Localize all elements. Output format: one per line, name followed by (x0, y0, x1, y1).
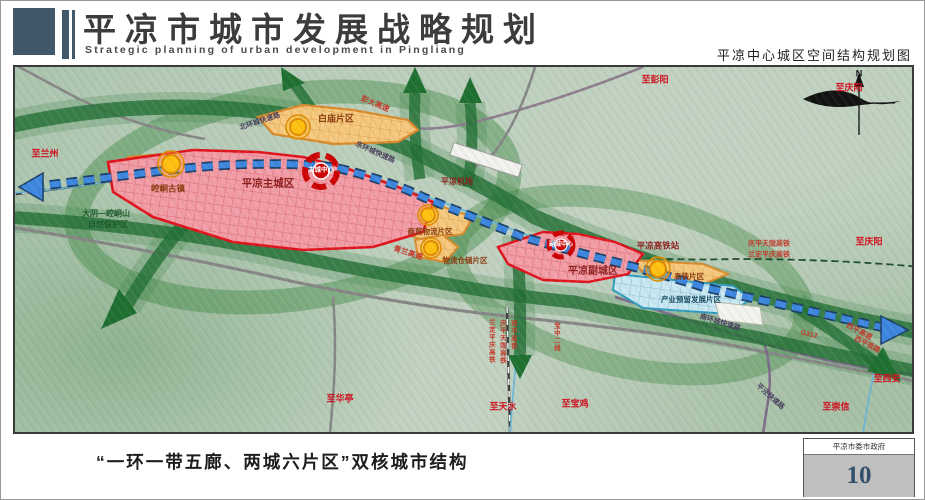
label-logistics-storage-area: 物流仓储片区 (443, 257, 488, 265)
label-kongtong-town: 崆峒古镇 (151, 185, 185, 194)
compass-n-label: N (856, 69, 863, 78)
label-main-city: 平凉主城区 (242, 178, 295, 189)
label-to-pengyang: 至彭阳 (641, 75, 668, 84)
label-to-lanzhou: 至兰州 (31, 149, 58, 158)
label-to-qingyang-north: 至庆阳 (835, 83, 862, 92)
label-trade-logistics-area: 商贸物流片区 (408, 228, 453, 236)
label-nature-reserve-line1: 大阴—崆峒山 (82, 210, 130, 218)
zone-baimiao[interactable] (258, 105, 418, 144)
label-to-xian: 至西安 (873, 374, 900, 383)
label-qingping-tianlong-hsr: 庆平天陇高铁 (748, 240, 790, 247)
page-number-box: 平凉市委市政府 10 (803, 438, 915, 497)
logo-bar-thin (72, 10, 75, 59)
label-landing-pingqing-hsr: 兰定平庆高铁 (748, 251, 790, 258)
label-airport: 平凉机场 (441, 178, 473, 186)
footer: “一环一带五廊、两城六片区”双核城市结构 平凉市委市政府 10 (1, 434, 925, 500)
header: 平凉市城市发展战略规划 Strategic planning of urban … (1, 1, 925, 63)
label-ldpq-hsr-vertical: 兰定平庆高铁 (487, 319, 494, 364)
government-label: 平凉市委市政府 (804, 439, 914, 455)
label-baimiao-area: 白庙片区 (318, 114, 354, 123)
label-hsr-station: 平凉高铁站 (637, 242, 680, 251)
map-canvas (15, 67, 912, 432)
label-qptl-hsr-vertical: 庆平天陇高铁 (498, 320, 505, 365)
logo-bar (62, 10, 69, 59)
label-xiping-hsr-vertical: 西平高铁 (509, 320, 516, 350)
label-to-huating: 至华亭 (326, 394, 353, 403)
label-to-qingyang-east: 至庆阳 (855, 237, 882, 246)
label-to-chongxin: 至崇信 (822, 402, 849, 411)
label-nature-reserve-line2: 自然保护区 (88, 221, 128, 229)
label-hsr-area: 高铁片区 (674, 273, 704, 281)
page-subtitle: Strategic planning of urban development … (85, 44, 466, 56)
planning-map[interactable]: 至兰州 至彭阳 至庆阳 至庆阳 至西安 至崇信 至宝鸡 至天水 至华亭 彭大高速… (13, 65, 914, 434)
plan-sheet: 平凉市城市发展战略规划 Strategic planning of urban … (0, 0, 925, 500)
page-number: 10 (804, 455, 914, 497)
label-to-baoji: 至宝鸡 (561, 399, 588, 408)
label-sub-city: 平凉副城区 (568, 267, 618, 278)
label-industry-reserve-area: 产业预留发展片区 (661, 296, 721, 304)
label-sub-center: 副城中心 (549, 242, 573, 248)
label-main-center: 主城中心 (308, 168, 334, 175)
logo-square (13, 8, 55, 55)
label-to-tianshui: 至天水 (489, 402, 516, 411)
structure-caption: “一环一带五廊、两城六片区”双核城市结构 (96, 449, 469, 474)
label-baozhong-2nd-line: 宝中二线 (552, 322, 559, 352)
map-title: 平凉中心城区空间结构规划图 (717, 45, 912, 64)
